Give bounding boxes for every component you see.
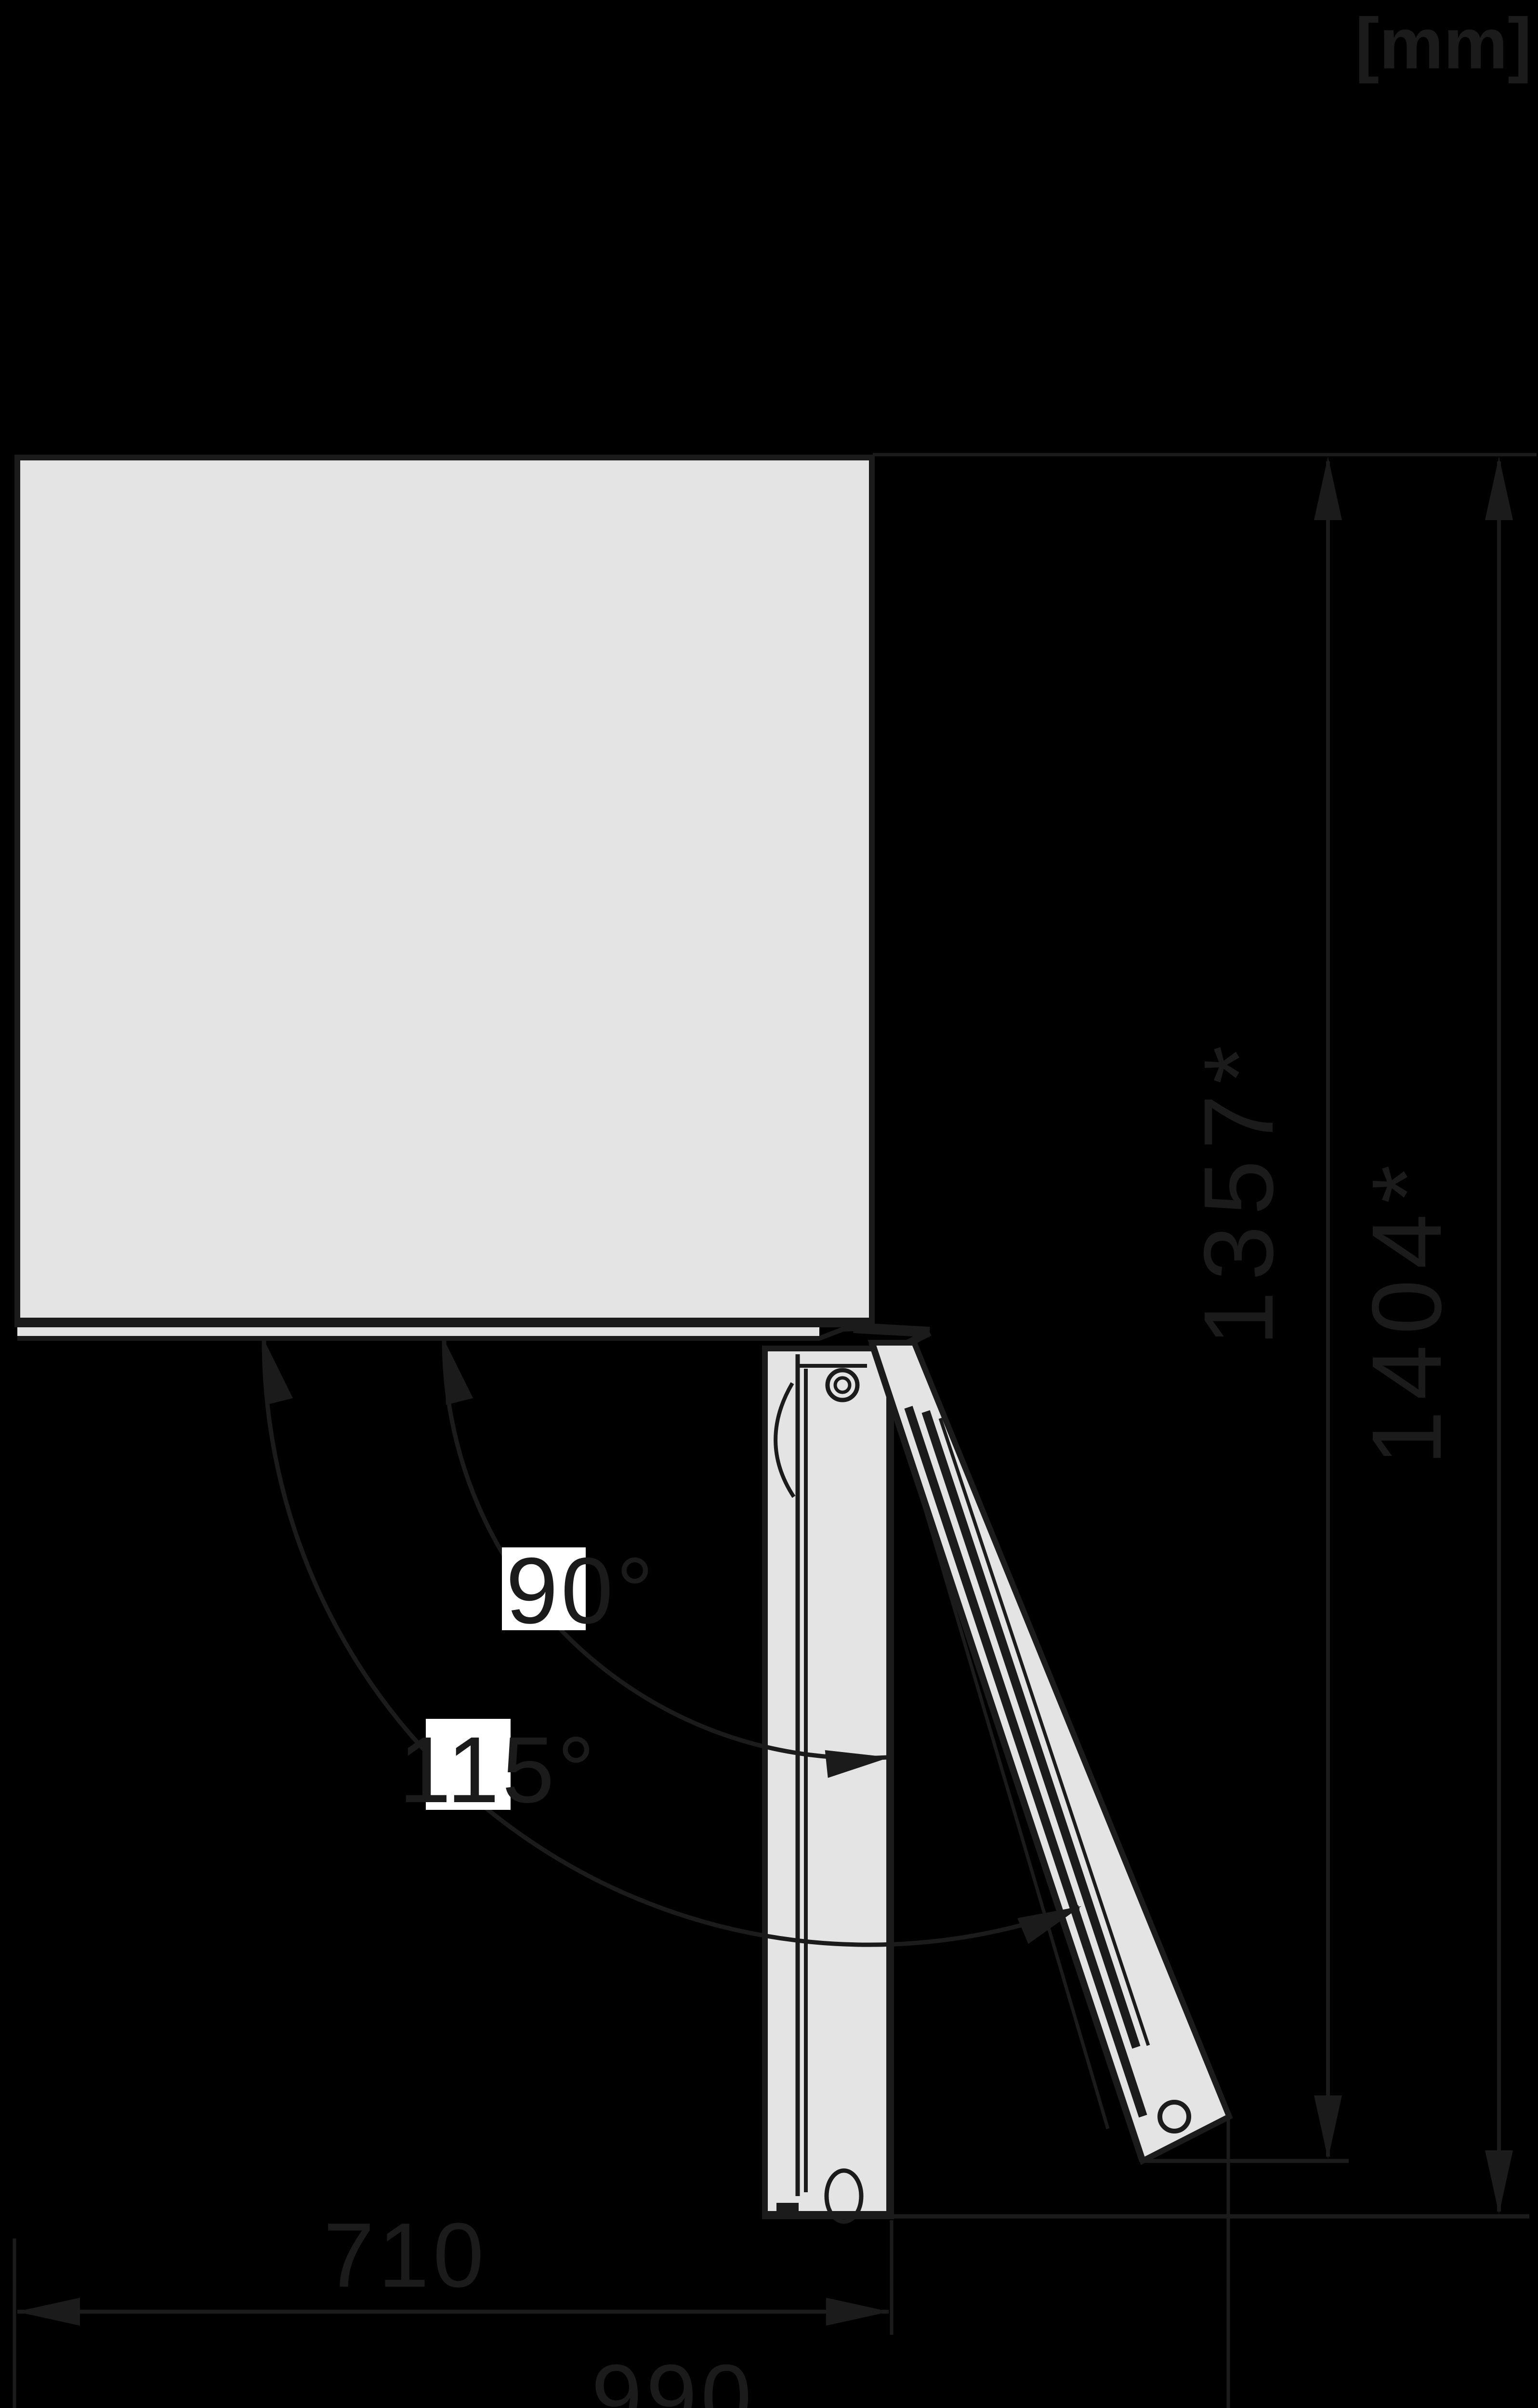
swing-arc-115 — [264, 1340, 1079, 1945]
dim-1357-top-arrowhead-icon — [1314, 457, 1342, 520]
door-115-gasket-line-thin-2 — [940, 1418, 1148, 2045]
hinge-bracket-arm — [854, 1328, 930, 1332]
arc-90-start-arrowhead-icon — [431, 1336, 473, 1405]
dim-710-label: 710 — [323, 2204, 487, 2306]
dim-1357-label: 1357* — [1183, 1035, 1294, 1346]
door-115-gasket-line-2 — [926, 1412, 1136, 2047]
door-115-gasket-line-1 — [908, 1407, 1143, 2116]
door-open-90 — [765, 1348, 892, 2222]
angle-115-label: 115° — [399, 1717, 598, 1822]
door-90-gasket-foot — [776, 2203, 799, 2215]
dim-1404-top-arrowhead-icon — [1485, 457, 1513, 520]
dim-1404-bottom-arrowhead-icon — [1485, 2150, 1513, 2214]
arc-115-start-arrowhead-icon — [250, 1336, 293, 1405]
cabinet-body — [17, 458, 872, 1322]
dim-710-left-arrowhead-icon — [16, 2298, 80, 2326]
door-open-115 — [872, 1343, 1229, 2161]
dim-1404-label: 1404* — [1352, 1154, 1462, 1466]
dim-990-label: 990 — [591, 2346, 755, 2408]
appliance-door-swing-diagram: 90° 115° 1357* 1404* 710 990 [mm] — [0, 0, 1538, 2408]
unit-label: [mm] — [1355, 3, 1532, 84]
angle-90-label: 90° — [506, 1538, 657, 1643]
dimension-diagram-page: 90° 115° 1357* 1404* 710 990 [mm] — [0, 0, 1538, 2408]
dim-1357-bottom-arrowhead-icon — [1314, 2095, 1342, 2159]
dim-710-right-arrowhead-icon — [826, 2298, 890, 2326]
